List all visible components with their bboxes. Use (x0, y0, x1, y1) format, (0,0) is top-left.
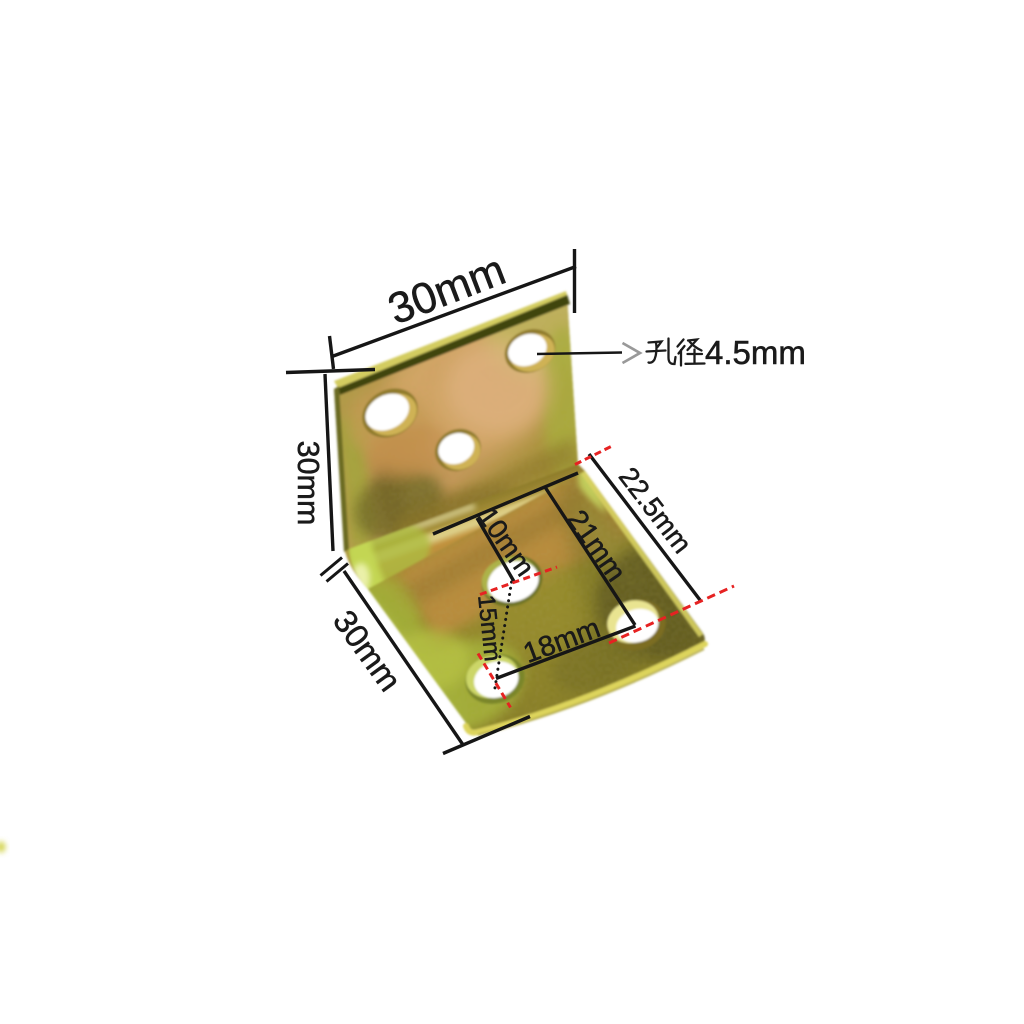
svg-text:30mm: 30mm (291, 441, 325, 526)
svg-text:4.5mm: 4.5mm (705, 334, 806, 371)
